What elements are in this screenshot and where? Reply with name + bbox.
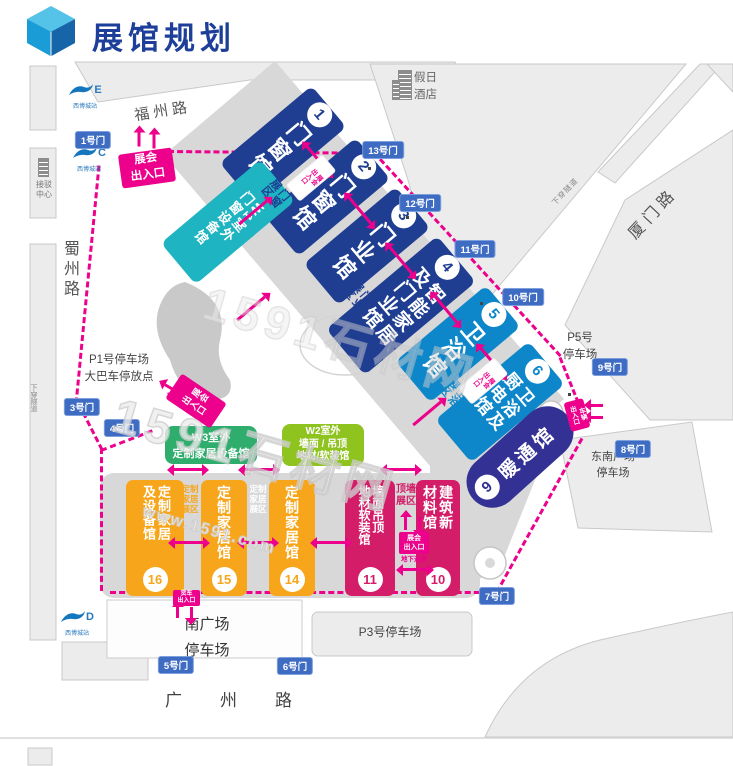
metro-logo-icon (60, 611, 86, 624)
hall-number-badge: 14 (280, 567, 305, 592)
hall-number-badge: 11 (358, 567, 383, 592)
road-marker-dot (568, 393, 571, 396)
exhibition-map-page: 展馆规划 (0, 0, 733, 766)
gate-13: 13号门 (362, 141, 404, 159)
hall-16: 定制家居 及设备馆 16 (126, 480, 184, 596)
metro-station-name: 西博城站 (54, 628, 100, 637)
metro-station-name: 西博城站 (66, 164, 112, 173)
hall-gap-arrow (317, 541, 345, 544)
underpass-arrow-up (404, 517, 407, 530)
hall-gap-arrow (244, 541, 272, 544)
hall-name: 墙面吊顶 地材软装馆 (356, 485, 384, 545)
road-label-shuzhou: 蜀州路 (57, 240, 81, 300)
zone-custom-1: 定制 家居 展区 (180, 484, 200, 515)
outdoor-hall-w2: W2室外 墙面 / 吊顶 地材/软装馆 (282, 424, 364, 466)
transfer-center-label: 接驳 中心 (31, 180, 57, 201)
gate-10: 10号门 (502, 288, 544, 306)
hall-name: 定制家居馆 (284, 485, 300, 560)
truck-arrow-down (190, 607, 193, 618)
road-marker-dot (406, 216, 409, 219)
metro-station-name: 西博城站 (62, 101, 108, 110)
zone-custom-2: 定制 家居 展区 (248, 484, 268, 515)
road-marker-dot (480, 302, 483, 305)
gate-4: 4号门 (104, 419, 140, 437)
metro-logo-icon (68, 84, 94, 97)
road-label-guangzhou: 广州路 (165, 686, 330, 711)
vehicle-entrance-label: 车辆 出入口 (566, 403, 587, 426)
entrance-arrow-up (153, 135, 156, 149)
hall-number-badge: 9 (469, 469, 504, 504)
hotel-building-icon (398, 70, 412, 100)
gate-7: 7号门 (479, 587, 515, 605)
vehicle-arrow (591, 404, 603, 407)
band-top-arrow (174, 468, 202, 471)
gate-9: 9号门 (592, 358, 628, 376)
vehicle-arrow (591, 416, 603, 419)
band-top-arrow (245, 468, 273, 471)
outdoor-hall-w3: W3室外 定制家居设备馆 (165, 426, 257, 464)
truck-entrance: 货车 出入口 (173, 590, 200, 606)
zone-ceiling: 顶墙 展区 (394, 484, 418, 508)
hall-name: 定制家居馆 (216, 485, 232, 560)
gate-6: 6号门 (277, 657, 313, 675)
metro-exit-c: C 西博城站 (66, 147, 112, 173)
road-marker-dot (368, 167, 371, 170)
band-top-arrow (387, 468, 415, 471)
gate-5: 5号门 (158, 656, 194, 674)
hall-name: 定制家居 及设备馆 (140, 485, 170, 541)
hall-name-line: W2室外 (282, 426, 364, 439)
underpass-arrow-lr (403, 568, 427, 571)
transfer-center-icon (38, 158, 49, 177)
route-dash (100, 448, 103, 591)
hotel-label: 假日 酒店 (414, 70, 437, 103)
metro-exit-e: E 西博城站 (62, 84, 108, 110)
hall-11: 墙面吊顶 地材软装馆 11 (345, 480, 395, 596)
underpass-arrow-down (418, 517, 421, 530)
hall-gap-arrow (175, 541, 203, 544)
gate-3: 3号门 (64, 398, 100, 416)
hall-number-badge: 15 (212, 567, 237, 592)
hall-name-line: W3室外 (165, 429, 257, 445)
entrance-arrow-up (138, 133, 141, 147)
hall-number-badge: 16 (143, 567, 168, 592)
hall-name: 建筑新 材料馆 (422, 485, 454, 530)
gate-1: 1号门 (75, 131, 111, 149)
parking-p3: P3号停车场 (330, 624, 450, 641)
road-label-tunnel-west: 下穿隧道 (28, 384, 38, 412)
truck-arrow-up (176, 607, 179, 618)
underpass-entrance: 展会 出入口 (399, 532, 429, 554)
hall-name-line: 墙面 / 吊顶 (282, 439, 364, 452)
hotel-building-icon-2 (392, 80, 400, 100)
metro-exit-d: D 西博城站 (54, 611, 100, 637)
hall-name-line: 定制家居设备馆 (165, 445, 257, 461)
gate-8: 8号门 (615, 440, 651, 458)
gate-11: 11号门 (454, 240, 495, 258)
hall-name-line: 地材/软装馆 (282, 451, 364, 464)
gate-12: 12号门 (399, 194, 441, 212)
